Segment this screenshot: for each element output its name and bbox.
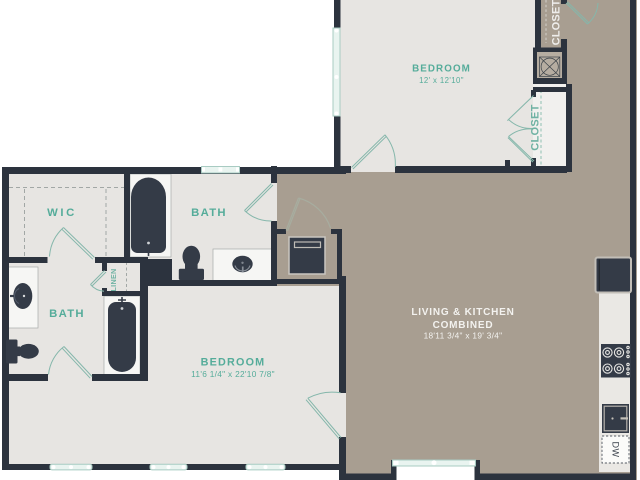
- svg-text:BATH: BATH: [191, 207, 227, 219]
- svg-text:CLOSET: CLOSET: [530, 104, 542, 150]
- svg-text:BEDROOM: BEDROOM: [201, 357, 266, 369]
- svg-text:CLOSET: CLOSET: [551, 0, 563, 45]
- svg-text:BEDROOM: BEDROOM: [412, 64, 471, 75]
- svg-text:WIC: WIC: [47, 207, 77, 219]
- svg-text:LINEN: LINEN: [109, 268, 118, 291]
- svg-text:DW: DW: [611, 442, 621, 458]
- svg-text:LIVING & KITCHEN: LIVING & KITCHEN: [411, 307, 514, 318]
- svg-text:18'11 3/4" x 19' 3/4": 18'11 3/4" x 19' 3/4": [424, 331, 503, 341]
- svg-text:COMBINED: COMBINED: [433, 320, 494, 331]
- svg-text:11'6 1/4" x 22'10 7/8": 11'6 1/4" x 22'10 7/8": [191, 369, 275, 379]
- svg-text:BATH: BATH: [49, 308, 85, 320]
- svg-text:12' x 12'10": 12' x 12'10": [419, 76, 464, 85]
